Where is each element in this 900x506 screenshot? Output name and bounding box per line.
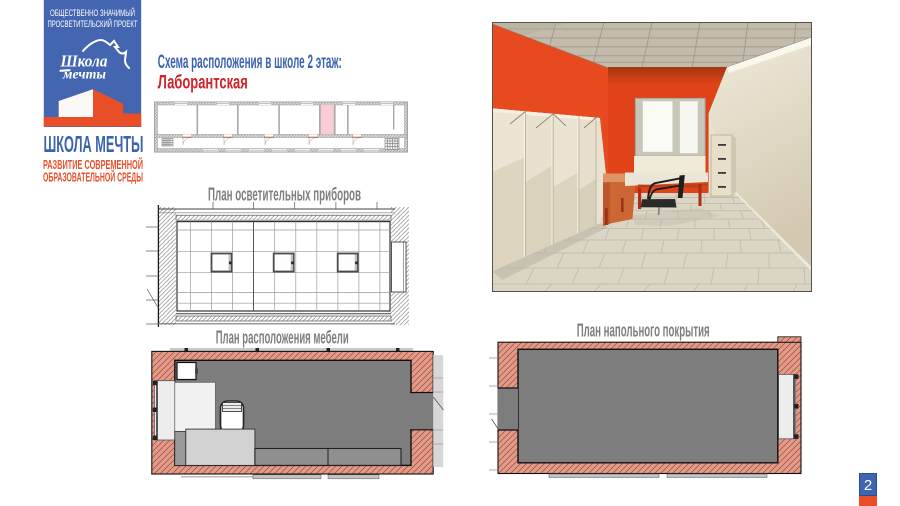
svg-text:Лаборантская: Лаборантская [158,72,248,94]
svg-text:ОБРАЗОВАТЕЛЬНОЙ СРЕДЫ: ОБРАЗОВАТЕЛЬНОЙ СРЕДЫ [43,170,143,185]
svg-text:Схема расположения в школе 2 э: Схема расположения в школе 2 этаж: [158,51,342,73]
svg-text:ШКОЛА МЕЧТЫ: ШКОЛА МЕЧТЫ [44,131,144,157]
